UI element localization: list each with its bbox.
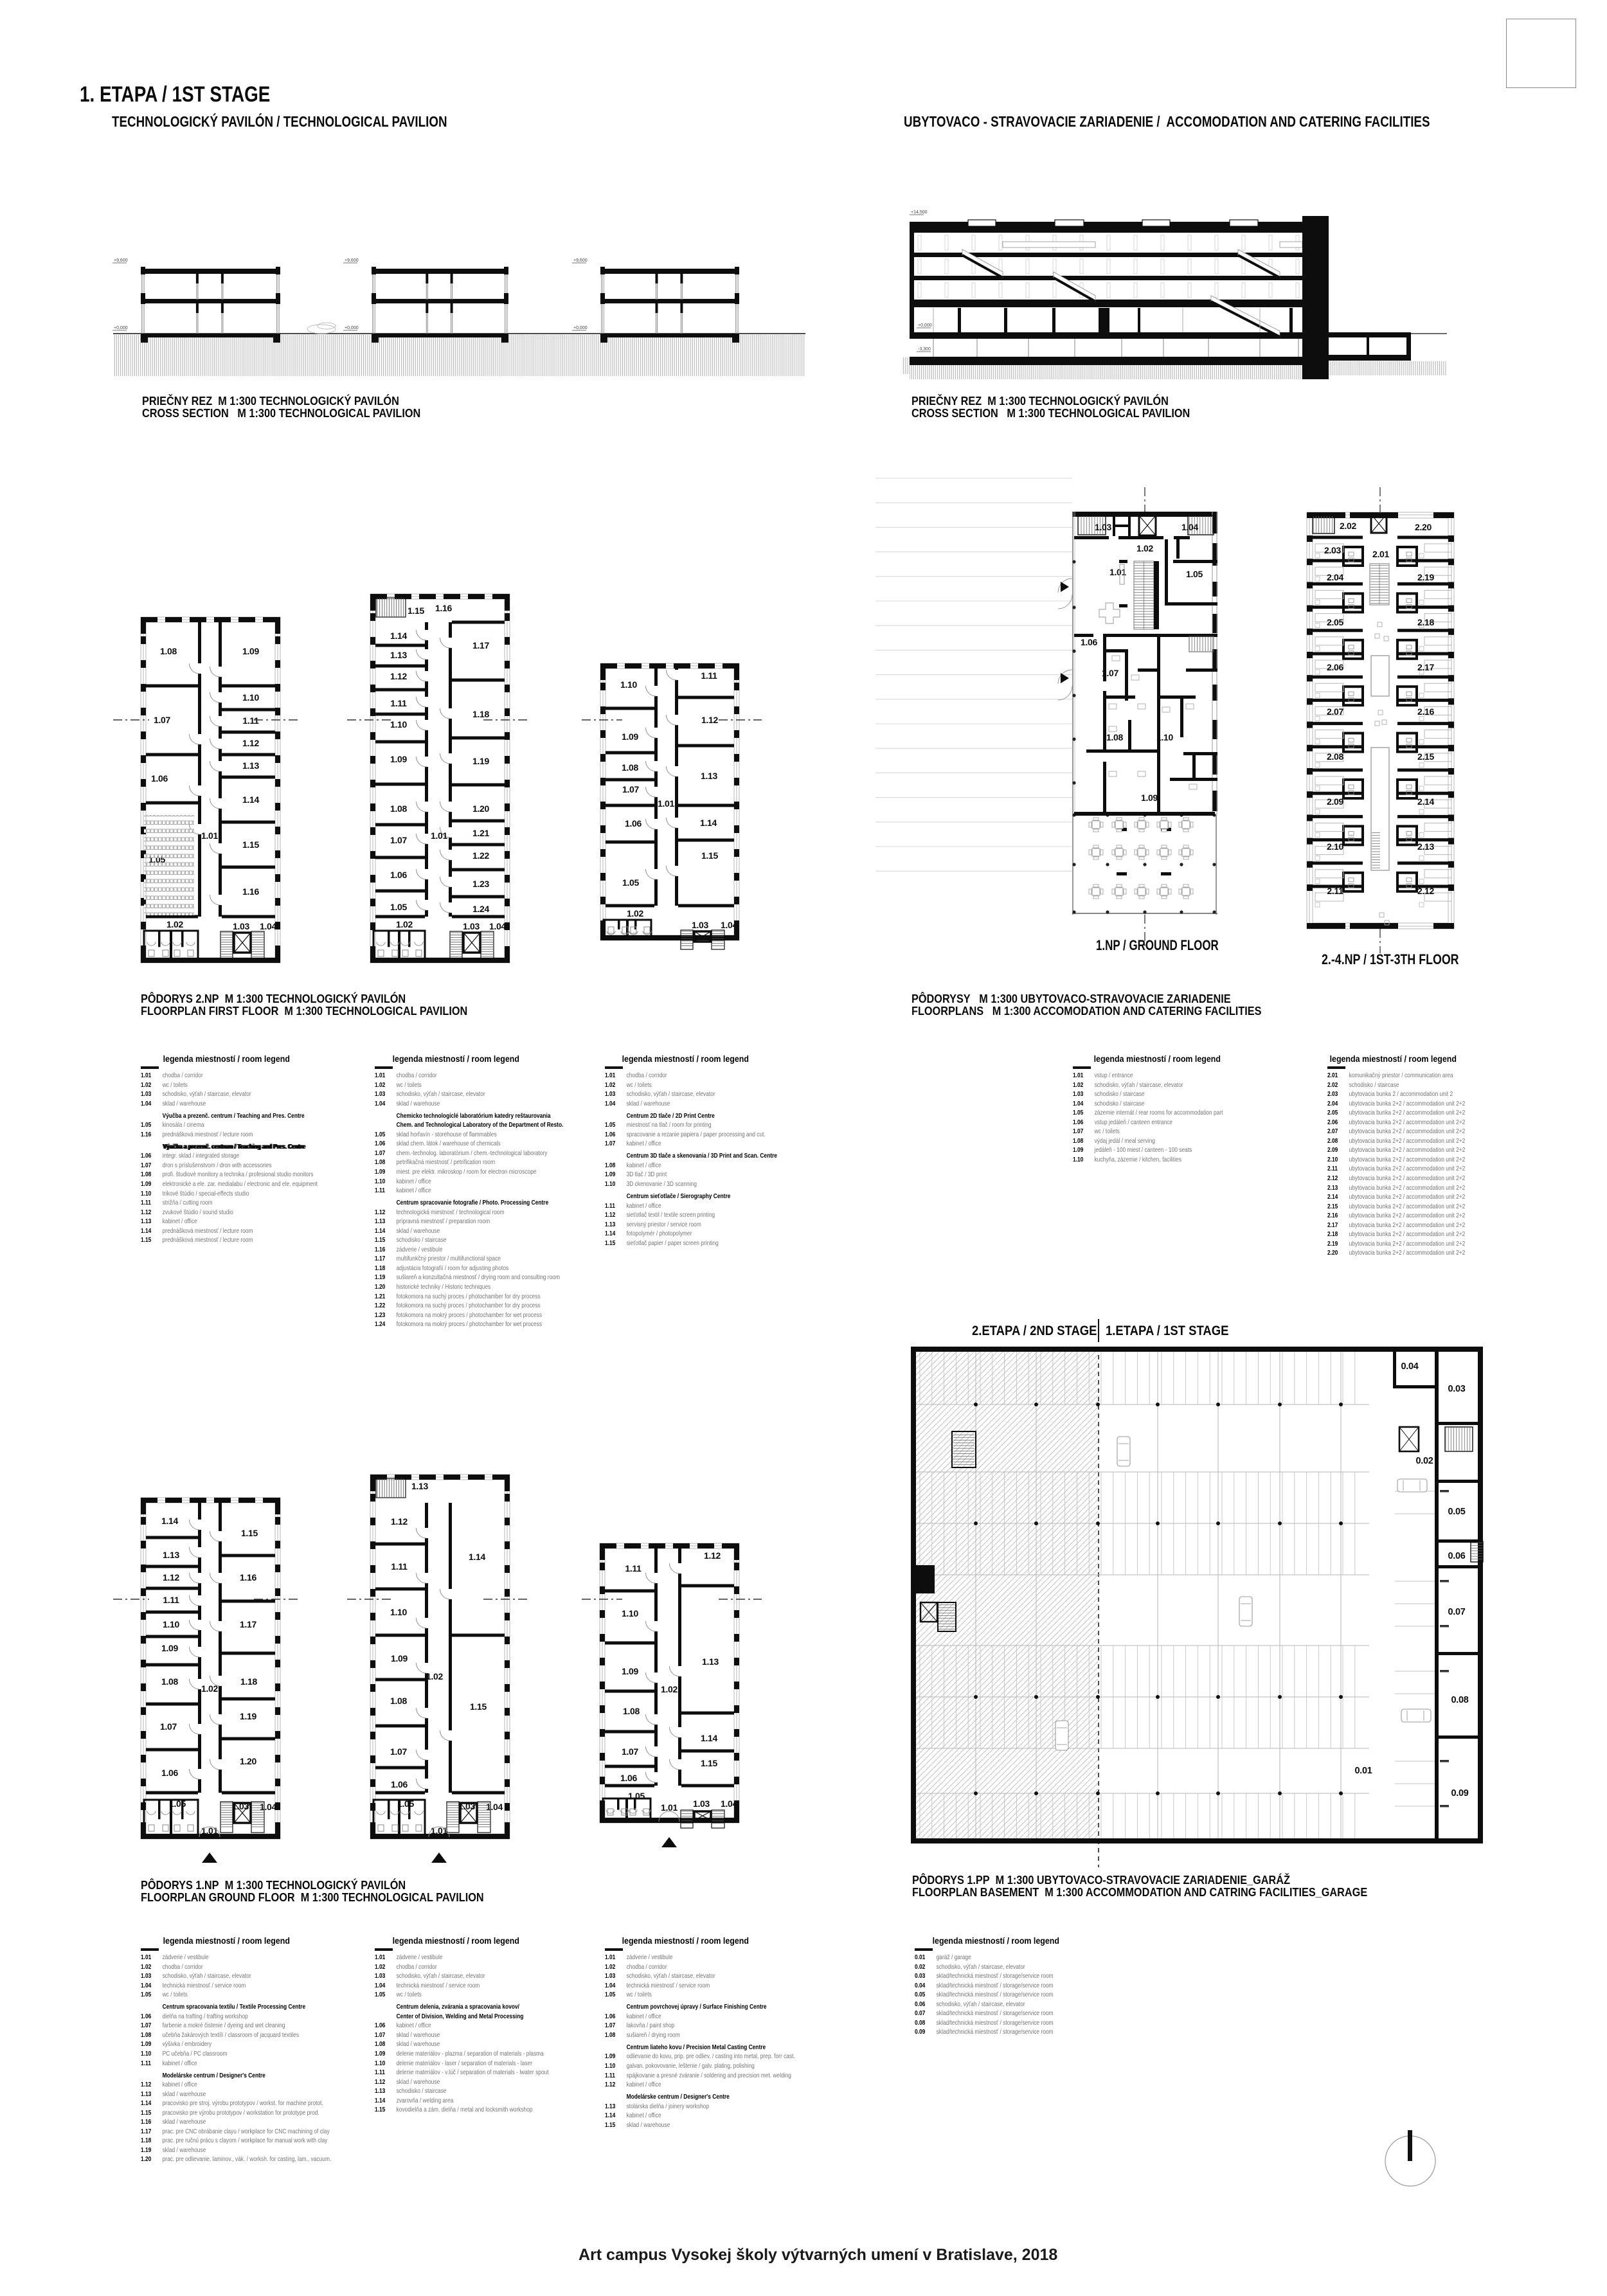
svg-text:0.08: 0.08 <box>1451 1695 1468 1705</box>
svg-text:0.03: 0.03 <box>1448 1384 1465 1394</box>
svg-text:2.18: 2.18 <box>1417 617 1435 627</box>
svg-text:1.05: 1.05 <box>622 877 640 888</box>
svg-text:0.01: 0.01 <box>1354 1766 1372 1776</box>
svg-text:1.18: 1.18 <box>240 1676 258 1687</box>
svg-text:1.11: 1.11 <box>242 715 259 726</box>
svg-text:1.02: 1.02 <box>396 919 413 929</box>
svg-text:1.10: 1.10 <box>622 1608 639 1619</box>
svg-text:2.11: 2.11 <box>1327 886 1343 896</box>
svg-text:2.03: 2.03 <box>1324 545 1342 555</box>
svg-text:0.04: 0.04 <box>1401 1361 1418 1372</box>
svg-text:1.10: 1.10 <box>163 1619 180 1629</box>
svg-text:1.02: 1.02 <box>201 1683 219 1694</box>
svg-text:1.06: 1.06 <box>391 1779 408 1789</box>
svg-text:1.12: 1.12 <box>242 738 260 748</box>
svg-text:1.13: 1.13 <box>702 1656 719 1667</box>
svg-text:1.19: 1.19 <box>472 756 490 766</box>
svg-text:1.02: 1.02 <box>426 1671 444 1682</box>
svg-text:1.11: 1.11 <box>163 1595 179 1605</box>
svg-text:1.12: 1.12 <box>390 671 408 681</box>
svg-text:1.14: 1.14 <box>390 631 408 641</box>
svg-text:1.10: 1.10 <box>390 719 408 730</box>
svg-text:1.03: 1.03 <box>693 1798 710 1809</box>
svg-text:+0,000: +0,000 <box>114 326 128 330</box>
svg-text:+0,000: +0,000 <box>573 326 588 330</box>
svg-text:1.17: 1.17 <box>472 640 490 650</box>
svg-text:1.13: 1.13 <box>242 760 260 771</box>
svg-text:1.17: 1.17 <box>240 1619 257 1629</box>
svg-text:1.09: 1.09 <box>622 1666 639 1676</box>
svg-text:1.04: 1.04 <box>721 1798 738 1809</box>
svg-text:1.08: 1.08 <box>390 803 408 814</box>
svg-text:1.15: 1.15 <box>408 605 425 616</box>
svg-text:1.11: 1.11 <box>701 670 717 681</box>
svg-text:1.04: 1.04 <box>260 921 277 931</box>
svg-text:0.02: 0.02 <box>1415 1456 1433 1466</box>
svg-text:1.07: 1.07 <box>160 1721 177 1732</box>
svg-text:1.09: 1.09 <box>242 646 260 656</box>
svg-text:1.07: 1.07 <box>390 1746 408 1757</box>
svg-text:1.08: 1.08 <box>161 1676 179 1687</box>
svg-text:1.13: 1.13 <box>411 1481 429 1491</box>
svg-text:1.10: 1.10 <box>1156 732 1174 742</box>
svg-text:1.11: 1.11 <box>391 1561 408 1572</box>
svg-text:1.07: 1.07 <box>622 1746 639 1757</box>
svg-text:1.06: 1.06 <box>625 818 642 829</box>
svg-text:+0,000: +0,000 <box>918 323 932 328</box>
svg-text:1.15: 1.15 <box>242 839 260 850</box>
svg-text:2.02: 2.02 <box>1340 521 1357 531</box>
svg-text:1.05: 1.05 <box>1186 569 1203 579</box>
svg-text:1.15: 1.15 <box>241 1528 258 1538</box>
svg-text:1.05: 1.05 <box>390 902 408 912</box>
svg-text:2.01: 2.01 <box>1372 549 1390 559</box>
svg-text:1.08: 1.08 <box>390 1696 408 1706</box>
svg-text:2.13: 2.13 <box>1417 841 1435 852</box>
svg-text:2.16: 2.16 <box>1417 706 1435 717</box>
svg-text:1.08: 1.08 <box>623 1706 640 1716</box>
svg-text:2.10: 2.10 <box>1327 841 1344 852</box>
svg-text:2.06: 2.06 <box>1327 662 1344 672</box>
svg-text:1.12: 1.12 <box>163 1572 180 1583</box>
svg-text:+9,600: +9,600 <box>114 258 128 263</box>
svg-text:1.23: 1.23 <box>472 879 490 889</box>
svg-text:1.07: 1.07 <box>154 715 171 725</box>
svg-text:1.04: 1.04 <box>489 921 507 931</box>
svg-text:2.17: 2.17 <box>1417 662 1435 672</box>
svg-text:2.14: 2.14 <box>1417 796 1435 807</box>
svg-text:1.21: 1.21 <box>472 828 490 838</box>
svg-text:1.06: 1.06 <box>161 1768 179 1778</box>
svg-text:1.24: 1.24 <box>472 904 490 914</box>
svg-text:1.06: 1.06 <box>1081 637 1098 647</box>
svg-text:2.20: 2.20 <box>1415 522 1432 532</box>
svg-text:1.14: 1.14 <box>242 794 260 805</box>
svg-text:0.06: 0.06 <box>1448 1551 1465 1561</box>
svg-text:+9,600: +9,600 <box>573 258 588 263</box>
svg-text:1.12: 1.12 <box>391 1516 408 1527</box>
svg-text:1.03: 1.03 <box>692 920 709 930</box>
svg-text:+0,000: +0,000 <box>345 326 359 330</box>
svg-text:0.09: 0.09 <box>1451 1788 1468 1798</box>
svg-text:1.02: 1.02 <box>627 908 644 919</box>
svg-text:2.08: 2.08 <box>1327 751 1344 762</box>
svg-text:1.11: 1.11 <box>390 698 407 708</box>
svg-text:1.02: 1.02 <box>661 1684 678 1694</box>
svg-text:1.04: 1.04 <box>1181 522 1199 532</box>
svg-text:1.13: 1.13 <box>701 771 718 781</box>
svg-text:1.08: 1.08 <box>160 646 177 656</box>
svg-text:1.13: 1.13 <box>163 1550 180 1560</box>
svg-text:1.03: 1.03 <box>233 921 250 931</box>
svg-text:1.06: 1.06 <box>390 870 408 880</box>
svg-text:1.03: 1.03 <box>463 921 480 931</box>
svg-text:1.13: 1.13 <box>390 650 408 660</box>
svg-text:1.19: 1.19 <box>240 1711 257 1721</box>
svg-text:1.10: 1.10 <box>242 692 260 703</box>
svg-text:2.04: 2.04 <box>1327 572 1344 582</box>
svg-text:1.14: 1.14 <box>701 1733 718 1743</box>
svg-text:1.07: 1.07 <box>622 784 640 794</box>
svg-text:2.19: 2.19 <box>1417 572 1435 582</box>
svg-text:2.09: 2.09 <box>1327 796 1344 807</box>
svg-text:1.14: 1.14 <box>700 818 717 828</box>
svg-text:1.08: 1.08 <box>622 762 639 773</box>
svg-text:1.12: 1.12 <box>701 715 719 725</box>
svg-text:1.05: 1.05 <box>628 1791 645 1801</box>
svg-text:1.15: 1.15 <box>701 1758 718 1768</box>
svg-text:1.20: 1.20 <box>240 1756 257 1766</box>
svg-text:-3,300: -3,300 <box>918 347 931 352</box>
svg-text:1.15: 1.15 <box>701 850 719 861</box>
svg-text:1.07: 1.07 <box>390 835 408 845</box>
svg-text:1.04: 1.04 <box>721 920 738 930</box>
svg-text:1.11: 1.11 <box>625 1563 642 1574</box>
svg-text:1.14: 1.14 <box>469 1552 486 1562</box>
svg-text:1.09: 1.09 <box>161 1643 179 1653</box>
svg-text:1.14: 1.14 <box>161 1516 179 1526</box>
svg-text:1.01: 1.01 <box>201 830 219 841</box>
svg-text:1.09: 1.09 <box>391 1653 408 1664</box>
svg-text:1.03: 1.03 <box>1095 522 1112 532</box>
svg-text:1.02: 1.02 <box>166 919 184 929</box>
svg-text:2.12: 2.12 <box>1417 886 1435 896</box>
svg-text:1.08: 1.08 <box>1106 732 1124 742</box>
svg-text:2.15: 2.15 <box>1417 751 1435 762</box>
svg-text:1.10: 1.10 <box>620 679 638 690</box>
svg-text:1.06: 1.06 <box>620 1773 638 1783</box>
svg-text:0.07: 0.07 <box>1448 1607 1465 1617</box>
svg-text:2.07: 2.07 <box>1327 706 1344 717</box>
svg-text:1.10: 1.10 <box>390 1607 408 1617</box>
svg-text:1.22: 1.22 <box>472 850 490 861</box>
svg-text:1.15: 1.15 <box>470 1701 487 1712</box>
svg-text:1.20: 1.20 <box>472 803 490 814</box>
svg-text:1.09: 1.09 <box>622 731 639 742</box>
svg-text:1.02: 1.02 <box>1136 543 1154 553</box>
svg-text:1.01: 1.01 <box>431 830 448 841</box>
svg-text:1.18: 1.18 <box>472 709 490 719</box>
svg-text:1.09: 1.09 <box>390 754 408 764</box>
svg-text:2.05: 2.05 <box>1327 617 1344 627</box>
svg-text:1.06: 1.06 <box>151 773 168 784</box>
svg-text:1.16: 1.16 <box>242 886 260 897</box>
svg-text:0.05: 0.05 <box>1448 1507 1465 1517</box>
svg-text:1.01: 1.01 <box>658 798 675 809</box>
svg-text:1.16: 1.16 <box>435 603 453 613</box>
svg-text:+9,600: +9,600 <box>345 258 359 263</box>
svg-text:1.12: 1.12 <box>704 1550 721 1561</box>
svg-text:1.09: 1.09 <box>1141 793 1158 803</box>
svg-text:+14,500: +14,500 <box>911 210 928 215</box>
svg-text:1.07: 1.07 <box>1102 668 1119 678</box>
svg-text:1.16: 1.16 <box>240 1572 257 1583</box>
